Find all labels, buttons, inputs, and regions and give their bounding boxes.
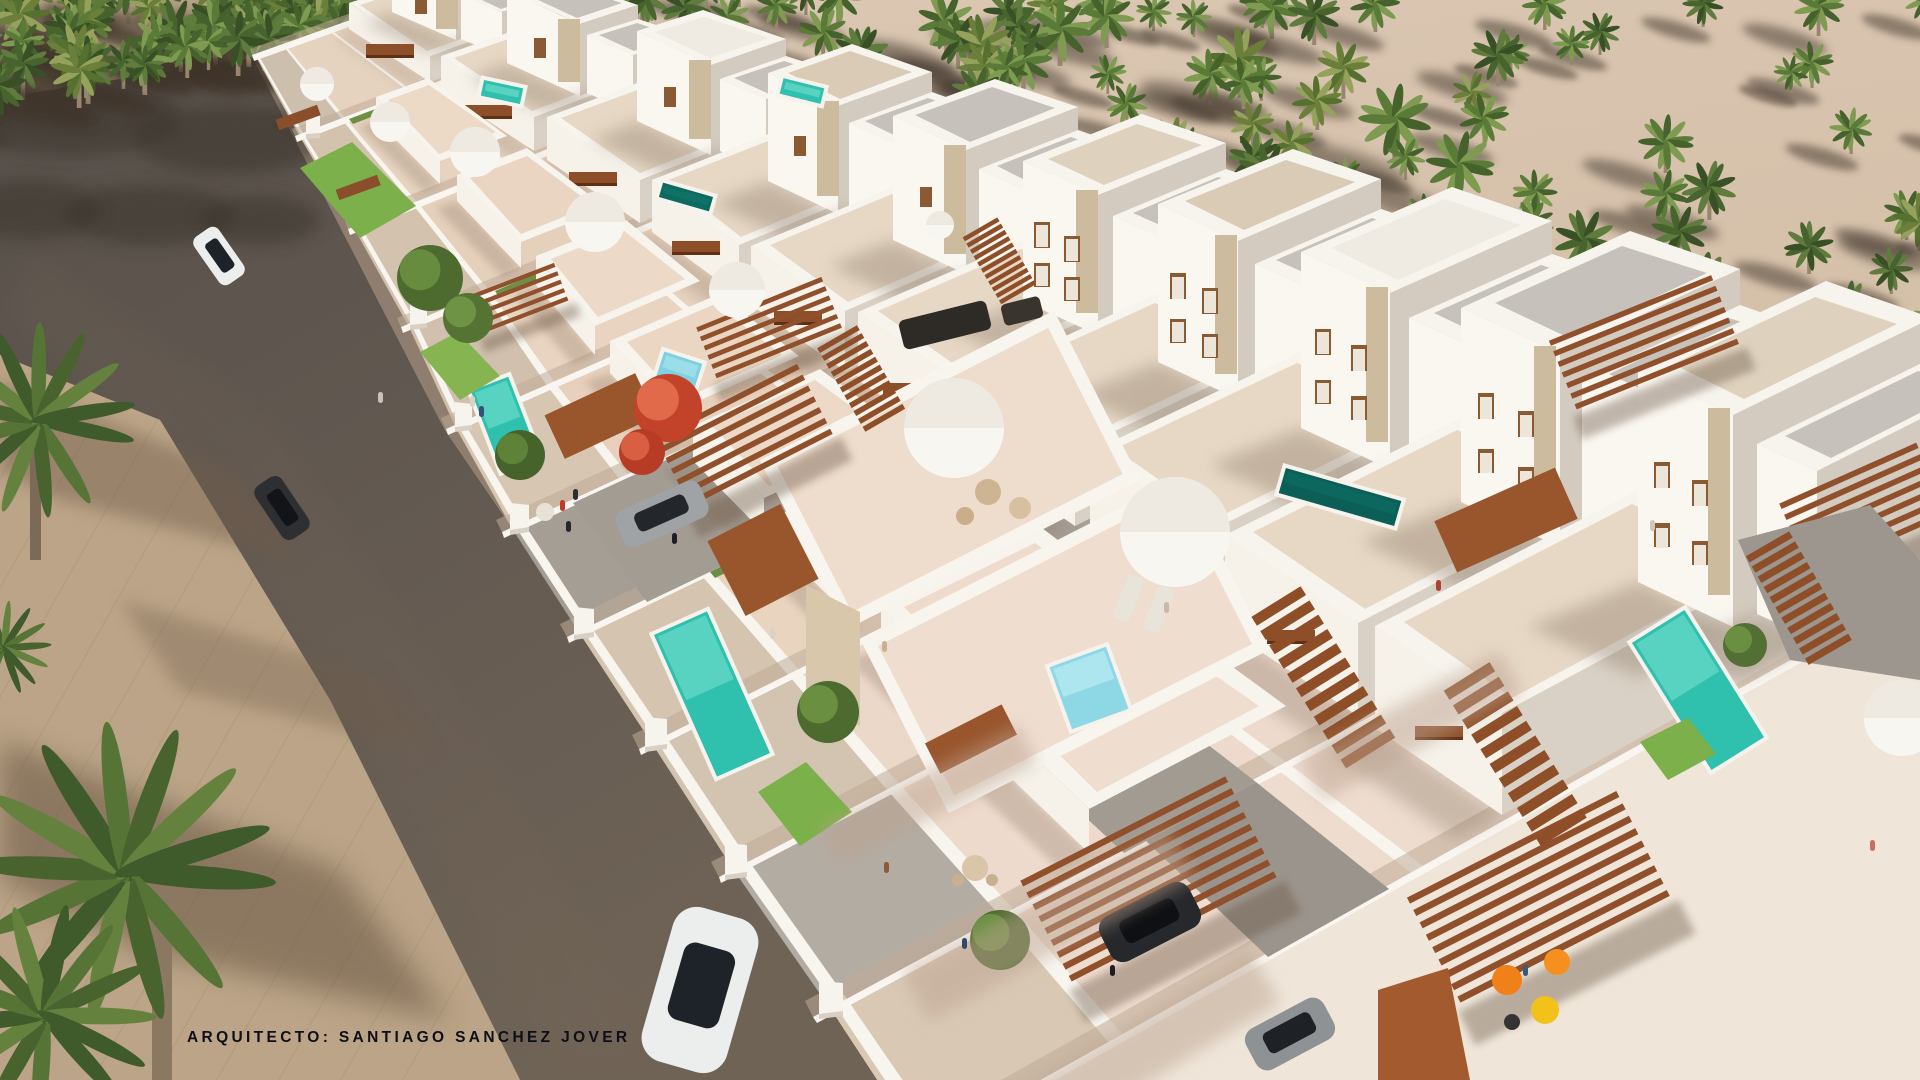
svg-text:ARQUITECTO: SANTIAGO SANCHEZ J: ARQUITECTO: SANTIAGO SANCHEZ JOVER <box>187 1029 630 1046</box>
